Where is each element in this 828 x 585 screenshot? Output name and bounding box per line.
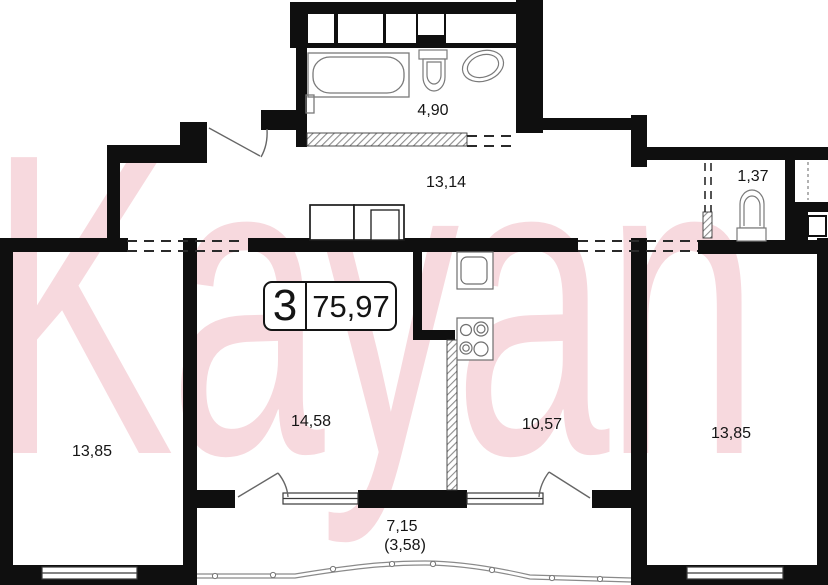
wall-west	[0, 238, 13, 585]
wall-mid-horizontal	[248, 238, 578, 252]
entrance-door	[209, 128, 267, 157]
wall-shaft-divider	[795, 202, 828, 212]
partition-wc	[703, 212, 712, 238]
unit-total-area: 75,97	[307, 283, 395, 329]
bathroom-niches	[308, 14, 516, 43]
wall-kitchen-stub-h	[413, 330, 455, 340]
partition-kitchen	[447, 340, 457, 490]
shaft-box	[808, 216, 826, 236]
sink-bathroom	[458, 45, 507, 87]
balcony-door-left	[238, 473, 288, 497]
wall-wc-east	[785, 160, 795, 240]
room-area-label-wc: 1,37	[737, 168, 768, 186]
wall-shaft-block	[795, 212, 808, 240]
unit-rooms-count: 3	[265, 283, 305, 329]
wall-balcony-sill-3	[592, 490, 631, 508]
room-area-label-bathroom: 4,90	[417, 102, 448, 120]
room-area-label-room-left: 13,85	[72, 443, 112, 461]
wall-entry-jamb	[180, 122, 207, 163]
wall-divider-left	[183, 238, 197, 585]
wall-balcony-sill-2	[358, 490, 467, 508]
room-area-label-hallway: 13,14	[426, 174, 466, 192]
balcony-door-right	[539, 472, 590, 498]
wall-balcony-sill-1	[197, 490, 235, 508]
wardrobes	[310, 205, 404, 240]
wall-bathroom-right	[516, 0, 543, 133]
wall-roomleft-top	[0, 238, 128, 252]
room-area-label-balcony-reduced: (3,58)	[384, 537, 426, 555]
floorplan-drawing	[0, 0, 828, 585]
unit-info-box: 3 75,97	[263, 281, 397, 331]
sink-kitchen	[457, 252, 493, 289]
stove	[457, 318, 493, 360]
floorplan-canvas: Kayan	[0, 0, 828, 585]
balcony-railing	[197, 561, 631, 582]
wall-divider-right	[631, 238, 647, 585]
wall-wc-bottom	[698, 240, 828, 254]
wall-step-h	[520, 118, 643, 130]
wall-entry-right	[261, 110, 307, 130]
room-area-label-room-right: 13,85	[711, 425, 751, 443]
wall-top-right	[640, 147, 828, 160]
toilet-bathroom	[419, 50, 447, 91]
wall-kitchen-stub-v	[413, 250, 422, 340]
room-area-label-room-middle: 14,58	[291, 413, 331, 431]
bathtub	[306, 53, 409, 113]
dashed-openings	[127, 136, 711, 251]
room-area-label-kitchen: 10,57	[522, 416, 562, 434]
wall-east	[817, 238, 828, 585]
toilet-wc	[737, 190, 766, 241]
partition-bathroom	[307, 133, 467, 146]
wall-hall-west	[107, 145, 120, 240]
room-area-label-balcony: 7,15	[386, 518, 417, 536]
walls	[0, 0, 828, 585]
